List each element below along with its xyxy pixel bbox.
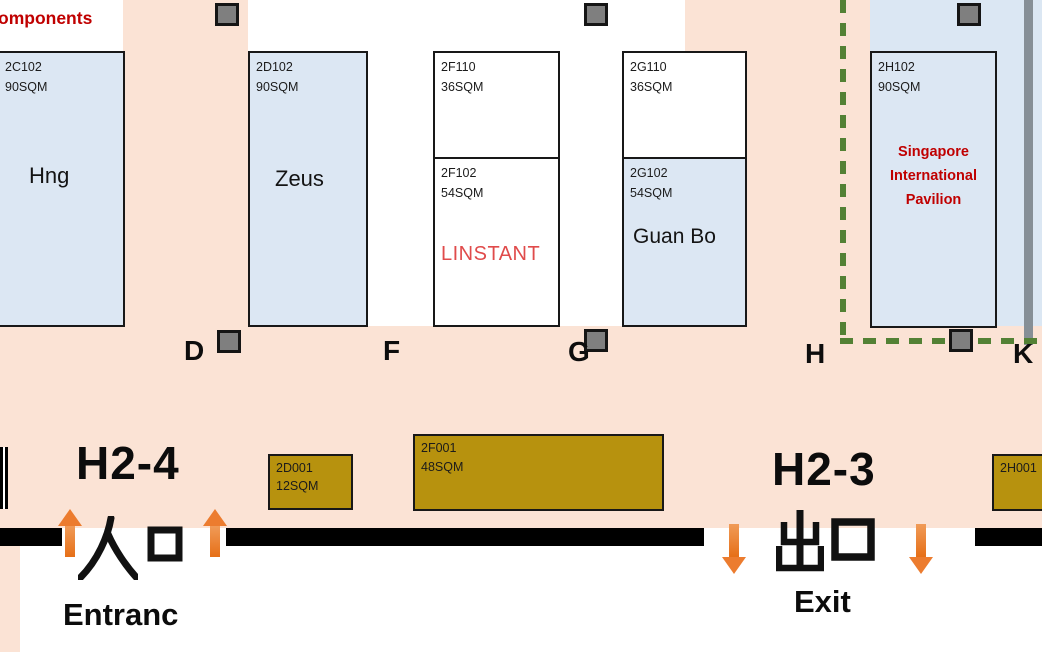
pillar-icon — [957, 3, 981, 26]
booth-code: 2G102 — [630, 163, 745, 183]
wall-segment-middle — [226, 528, 704, 546]
company-name: LINSTANT — [441, 243, 540, 266]
grid-letter-K: K — [1013, 338, 1033, 370]
hall-label-h2-4: H2-4 — [76, 436, 180, 490]
hall-divider-bar — [1024, 0, 1033, 345]
booth-code: 2D102 — [256, 57, 366, 77]
booth-code: 2F110 — [441, 57, 558, 77]
booth-code: 2G110 — [630, 57, 745, 77]
booth-2D001: 2D001 12SQM — [268, 454, 353, 510]
booth-code: 2F001 — [421, 439, 662, 458]
booth-area: 36SQM — [441, 77, 558, 97]
booth-code: 2H102 — [878, 57, 995, 77]
booth-code: 2F102 — [441, 163, 558, 183]
exit-cn-text — [776, 508, 824, 572]
booth-2D102: 2D102 90SQM Zeus — [248, 51, 368, 327]
exit-arrow-down-icon — [909, 524, 933, 574]
aisle-peach-column-left — [123, 0, 248, 330]
grid-letter-G: G — [568, 336, 590, 368]
entrance-cn-text — [78, 516, 138, 580]
booth-2F102: 2F102 54SQM LINSTANT — [433, 157, 560, 327]
cropped-components-label: omponents — [0, 8, 92, 29]
booth-2G110: 2G110 36SQM — [622, 51, 747, 159]
company-name: Hng — [29, 163, 69, 189]
booth-area: 12SQM — [276, 477, 351, 495]
booth-2F110: 2F110 36SQM — [433, 51, 560, 159]
entrance-cn-text-kou — [146, 524, 184, 564]
pillar-icon — [584, 3, 608, 26]
pillar-icon — [215, 3, 239, 26]
booth-2H001: 2H001 — [992, 454, 1042, 511]
exit-arrow-down-icon — [722, 524, 746, 574]
wall-segment-left — [0, 528, 62, 546]
cjk-kou-glyph — [830, 516, 876, 564]
left-edge-strip — [0, 528, 20, 652]
wall-stub-gap — [3, 447, 5, 509]
booth-code: 2C102 — [5, 57, 123, 77]
booth-code: 2H001 — [1000, 459, 1042, 477]
booth-area: 54SQM — [630, 183, 745, 203]
entrance-label: Entranc — [63, 597, 178, 633]
booth-area: 90SQM — [878, 77, 995, 97]
booth-area: 36SQM — [630, 77, 745, 97]
exit-cn-text-kou — [830, 516, 876, 564]
booth-2C102: 2C102 90SQM Hng — [0, 51, 125, 327]
hall-label-h2-3: H2-3 — [772, 442, 876, 496]
booth-2G102: 2G102 54SQM Guan Bo — [622, 157, 747, 327]
booth-2H102: 2H102 90SQM Singapore International Pavi… — [870, 51, 997, 328]
wall-segment-right — [975, 528, 1042, 546]
grid-letter-F: F — [383, 335, 400, 367]
pillar-icon — [949, 329, 973, 352]
grid-letter-D: D — [184, 335, 204, 367]
cjk-kou-glyph — [146, 524, 184, 564]
floor-plan: omponents 2C102 90SQM Hng 2D102 90SQM Ze… — [0, 0, 1042, 652]
exit-label: Exit — [794, 584, 851, 620]
entrance-arrow-up-icon — [203, 509, 227, 557]
grid-letter-H: H — [805, 338, 825, 370]
company-name: Zeus — [275, 166, 324, 192]
cjk-ru-glyph — [78, 516, 138, 580]
company-name: Guan Bo — [633, 225, 716, 249]
pavilion-dashed-border-horizontal — [840, 338, 1042, 344]
cjk-chu-glyph — [776, 508, 824, 572]
pavilion-dashed-border-vertical — [840, 0, 846, 338]
booth-area: 90SQM — [256, 77, 366, 97]
pillar-icon — [217, 330, 241, 353]
wall-stub-left-edge — [0, 447, 8, 509]
booth-area: 48SQM — [421, 458, 662, 477]
booth-code: 2D001 — [276, 459, 351, 477]
booth-area: 54SQM — [441, 183, 558, 203]
booth-2F001: 2F001 48SQM — [413, 434, 664, 511]
pavilion-name: Singapore International Pavilion — [872, 140, 995, 212]
booth-area: 90SQM — [5, 77, 123, 97]
